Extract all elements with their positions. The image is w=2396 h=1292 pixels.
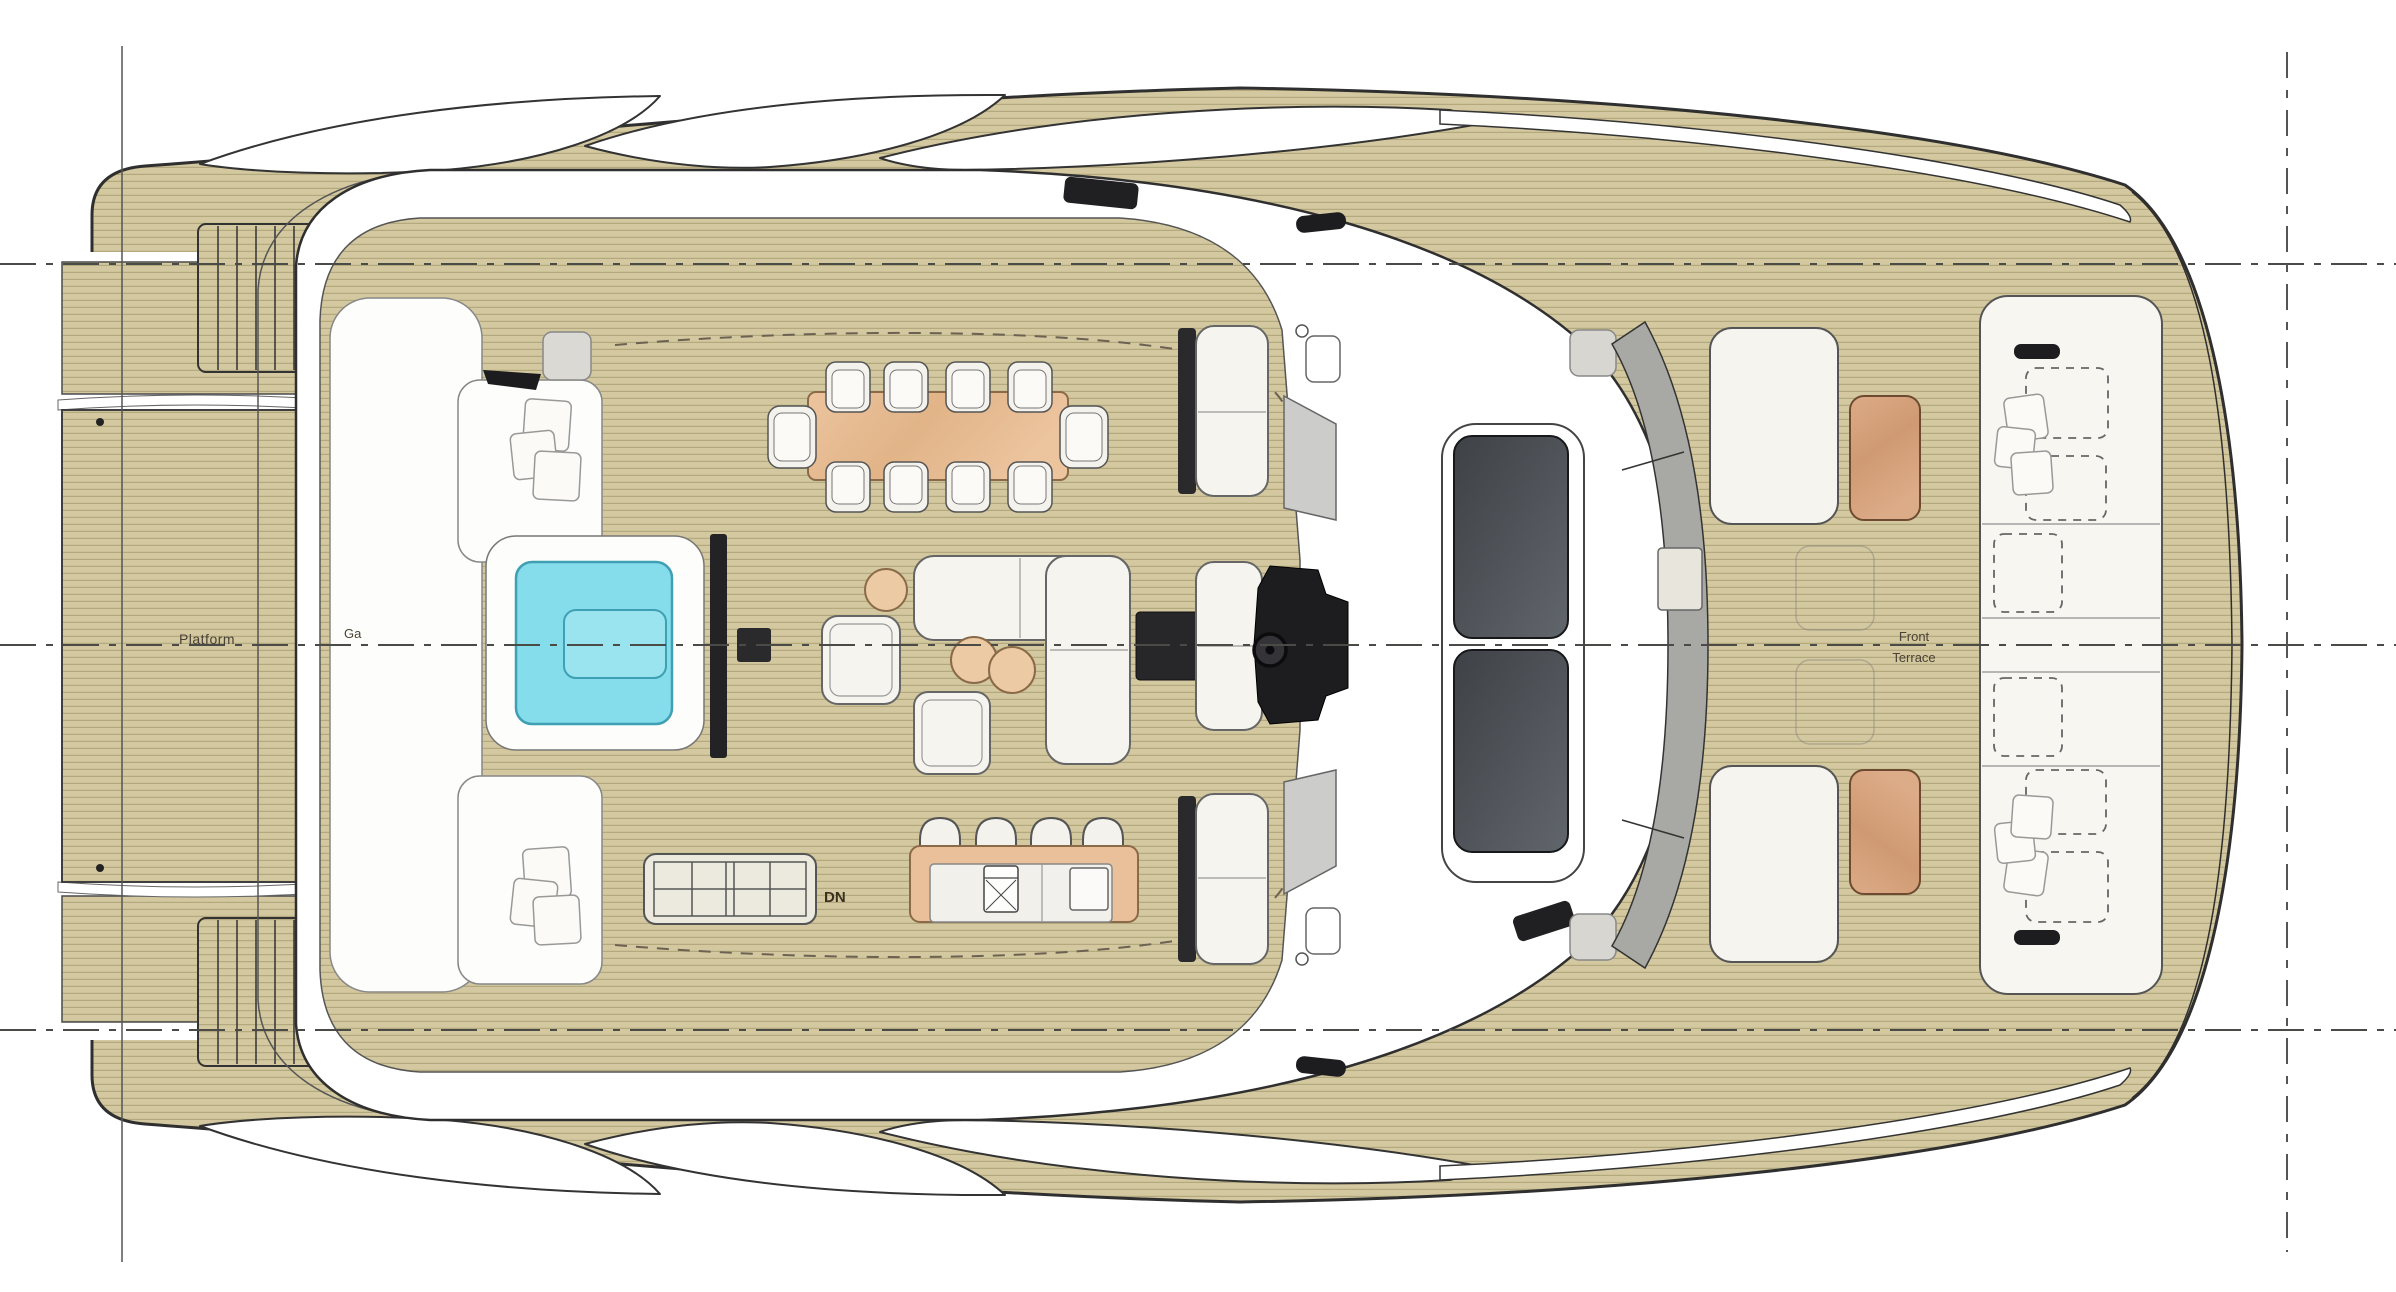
grab-rail <box>2014 930 2060 945</box>
stair-hatch <box>644 854 816 924</box>
sink-unit <box>1070 868 1108 910</box>
roof-hatch-grey <box>1570 914 1616 960</box>
sofa-right-section <box>1046 556 1130 764</box>
deck-plan-drawing: Platform Ga DN Front Terrace <box>0 0 2396 1292</box>
bench-forward-starboard <box>1178 794 1268 964</box>
wheel-hub <box>1266 646 1275 655</box>
coachroof-skylights <box>1442 424 1584 882</box>
armchair <box>822 616 900 704</box>
armchair <box>914 692 990 774</box>
side-table-grey <box>543 332 591 380</box>
coffee-table <box>989 647 1035 693</box>
platform-fitting <box>96 418 104 426</box>
front-terrace-label-line1: Front <box>1899 629 1930 644</box>
stairs-down-label: DN <box>824 889 846 906</box>
round-side-table <box>865 569 907 611</box>
platform-label: Platform <box>179 631 235 647</box>
bow-sunpads <box>1980 296 2162 994</box>
grill-unit <box>984 866 1018 912</box>
garage-label: Ga <box>344 626 362 641</box>
roof-hatch-grey <box>1570 330 1616 376</box>
bench-forward-port <box>1178 326 1268 496</box>
grab-rail <box>2014 344 2060 359</box>
yacht-deck-plan: Platform Ga DN Front Terrace <box>0 0 2396 1292</box>
platform-fitting <box>96 864 104 872</box>
skylight-glass-top <box>1454 436 1568 638</box>
skylight-glass-bottom <box>1454 650 1568 852</box>
windshield-door <box>1658 548 1702 610</box>
front-terrace-label-line2: Terrace <box>1892 650 1935 665</box>
